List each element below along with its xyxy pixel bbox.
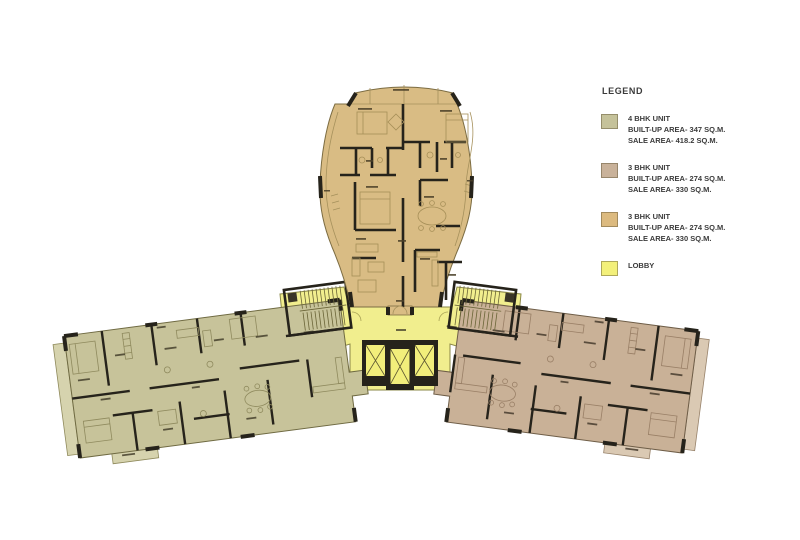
unit-3bhk-right [429, 281, 712, 464]
legend-label: 3 BHK UNIT [628, 162, 725, 173]
legend-label: 4 BHK UNIT [628, 113, 725, 124]
legend-swatch-3bhk-a [601, 163, 618, 178]
unit-4bhk-left [50, 281, 373, 470]
legend-salearea: SALE AREA- 330 SQ.M. [628, 233, 725, 244]
legend-label: LOBBY [628, 260, 654, 271]
lobby-label-smudge [396, 329, 406, 331]
legend-swatch-lobby [601, 261, 618, 276]
legend: LEGEND 4 BHK UNIT BUILT-UP AREA- 347 SQ.… [601, 86, 776, 292]
legend-entry-3bhk-b: 3 BHK UNIT BUILT-UP AREA- 274 SQ.M. SALE… [601, 211, 776, 244]
legend-entry-lobby: LOBBY [601, 260, 776, 276]
legend-builtup: BUILT-UP AREA- 274 SQ.M. [628, 173, 725, 184]
elevator-bank [362, 340, 438, 390]
legend-swatch-3bhk-b [601, 212, 618, 227]
legend-swatch-4bhk [601, 114, 618, 129]
legend-label: 3 BHK UNIT [628, 211, 725, 222]
floorplan-page: LEGEND 4 BHK UNIT BUILT-UP AREA- 347 SQ.… [0, 0, 800, 540]
legend-salearea: SALE AREA- 330 SQ.M. [628, 184, 725, 195]
legend-entry-4bhk: 4 BHK UNIT BUILT-UP AREA- 347 SQ.M. SALE… [601, 113, 776, 146]
legend-entry-3bhk-a: 3 BHK UNIT BUILT-UP AREA- 274 SQ.M. SALE… [601, 162, 776, 195]
legend-salearea: SALE AREA- 418.2 SQ.M. [628, 135, 725, 146]
entrance-porch [388, 306, 412, 315]
unit-3bhk-top [320, 85, 473, 315]
legend-title: LEGEND [602, 86, 776, 96]
legend-builtup: BUILT-UP AREA- 347 SQ.M. [628, 124, 725, 135]
legend-builtup: BUILT-UP AREA- 274 SQ.M. [628, 222, 725, 233]
